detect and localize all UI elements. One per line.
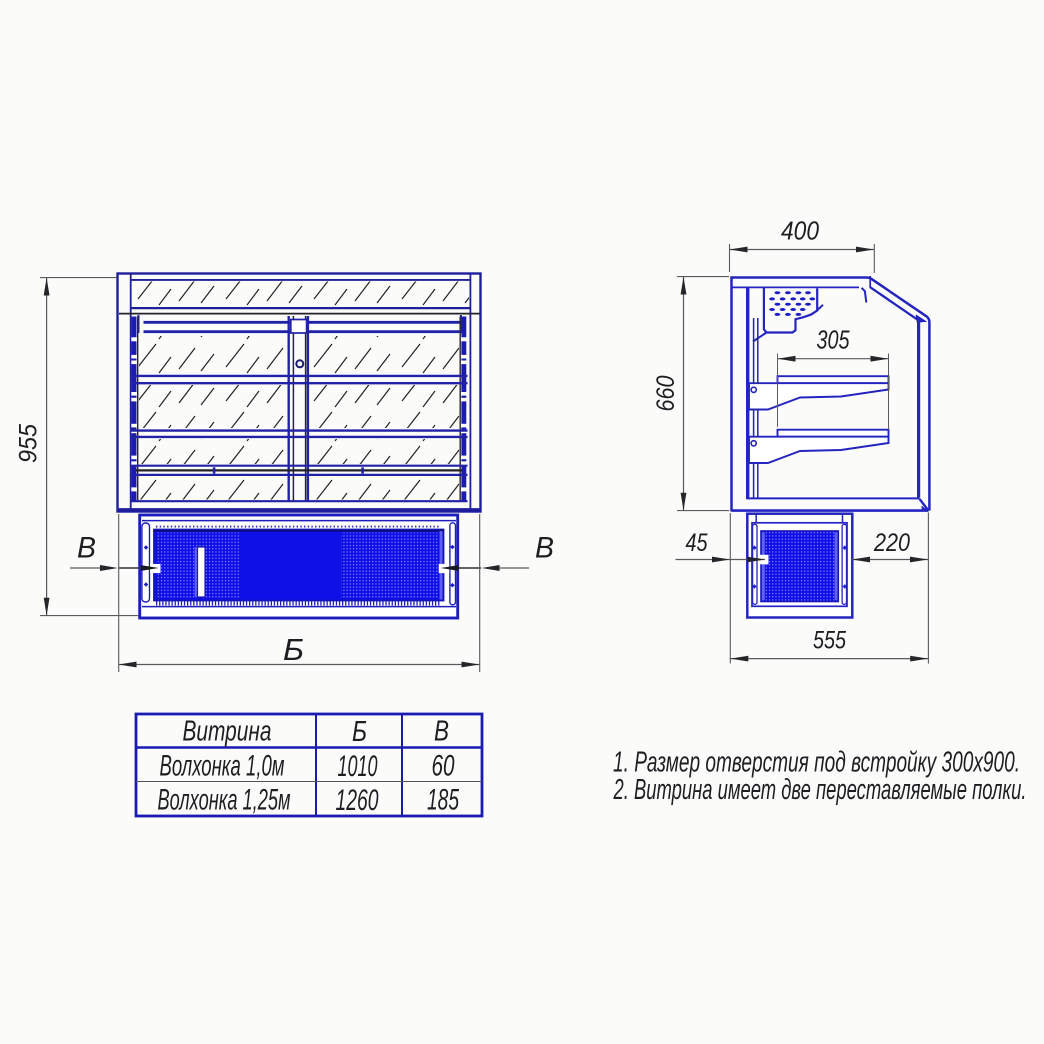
svg-text:Б: Б — [352, 716, 367, 748]
svg-text:Витрина: Витрина — [183, 716, 272, 748]
svg-text:305: 305 — [817, 325, 850, 355]
svg-text:955: 955 — [15, 424, 43, 463]
svg-text:555: 555 — [813, 627, 846, 655]
svg-text:45: 45 — [686, 529, 708, 557]
svg-text:Б: Б — [283, 632, 304, 667]
svg-text:В: В — [77, 532, 96, 565]
svg-text:Волхонка 1,0м: Волхонка 1,0м — [160, 750, 285, 783]
svg-text:2. Витрина имеет две переставл: 2. Витрина имеет две переставляемые полк… — [613, 774, 1027, 806]
svg-text:660: 660 — [652, 375, 680, 411]
svg-text:185: 185 — [427, 784, 459, 817]
svg-text:В: В — [434, 716, 449, 748]
svg-text:400: 400 — [781, 216, 819, 246]
svg-text:1010: 1010 — [338, 750, 378, 783]
svg-text:В: В — [535, 532, 554, 565]
svg-text:60: 60 — [432, 750, 455, 783]
svg-text:220: 220 — [873, 529, 910, 557]
svg-text:Волхонка 1,25м: Волхонка 1,25м — [158, 784, 291, 817]
svg-text:1260: 1260 — [336, 784, 379, 817]
